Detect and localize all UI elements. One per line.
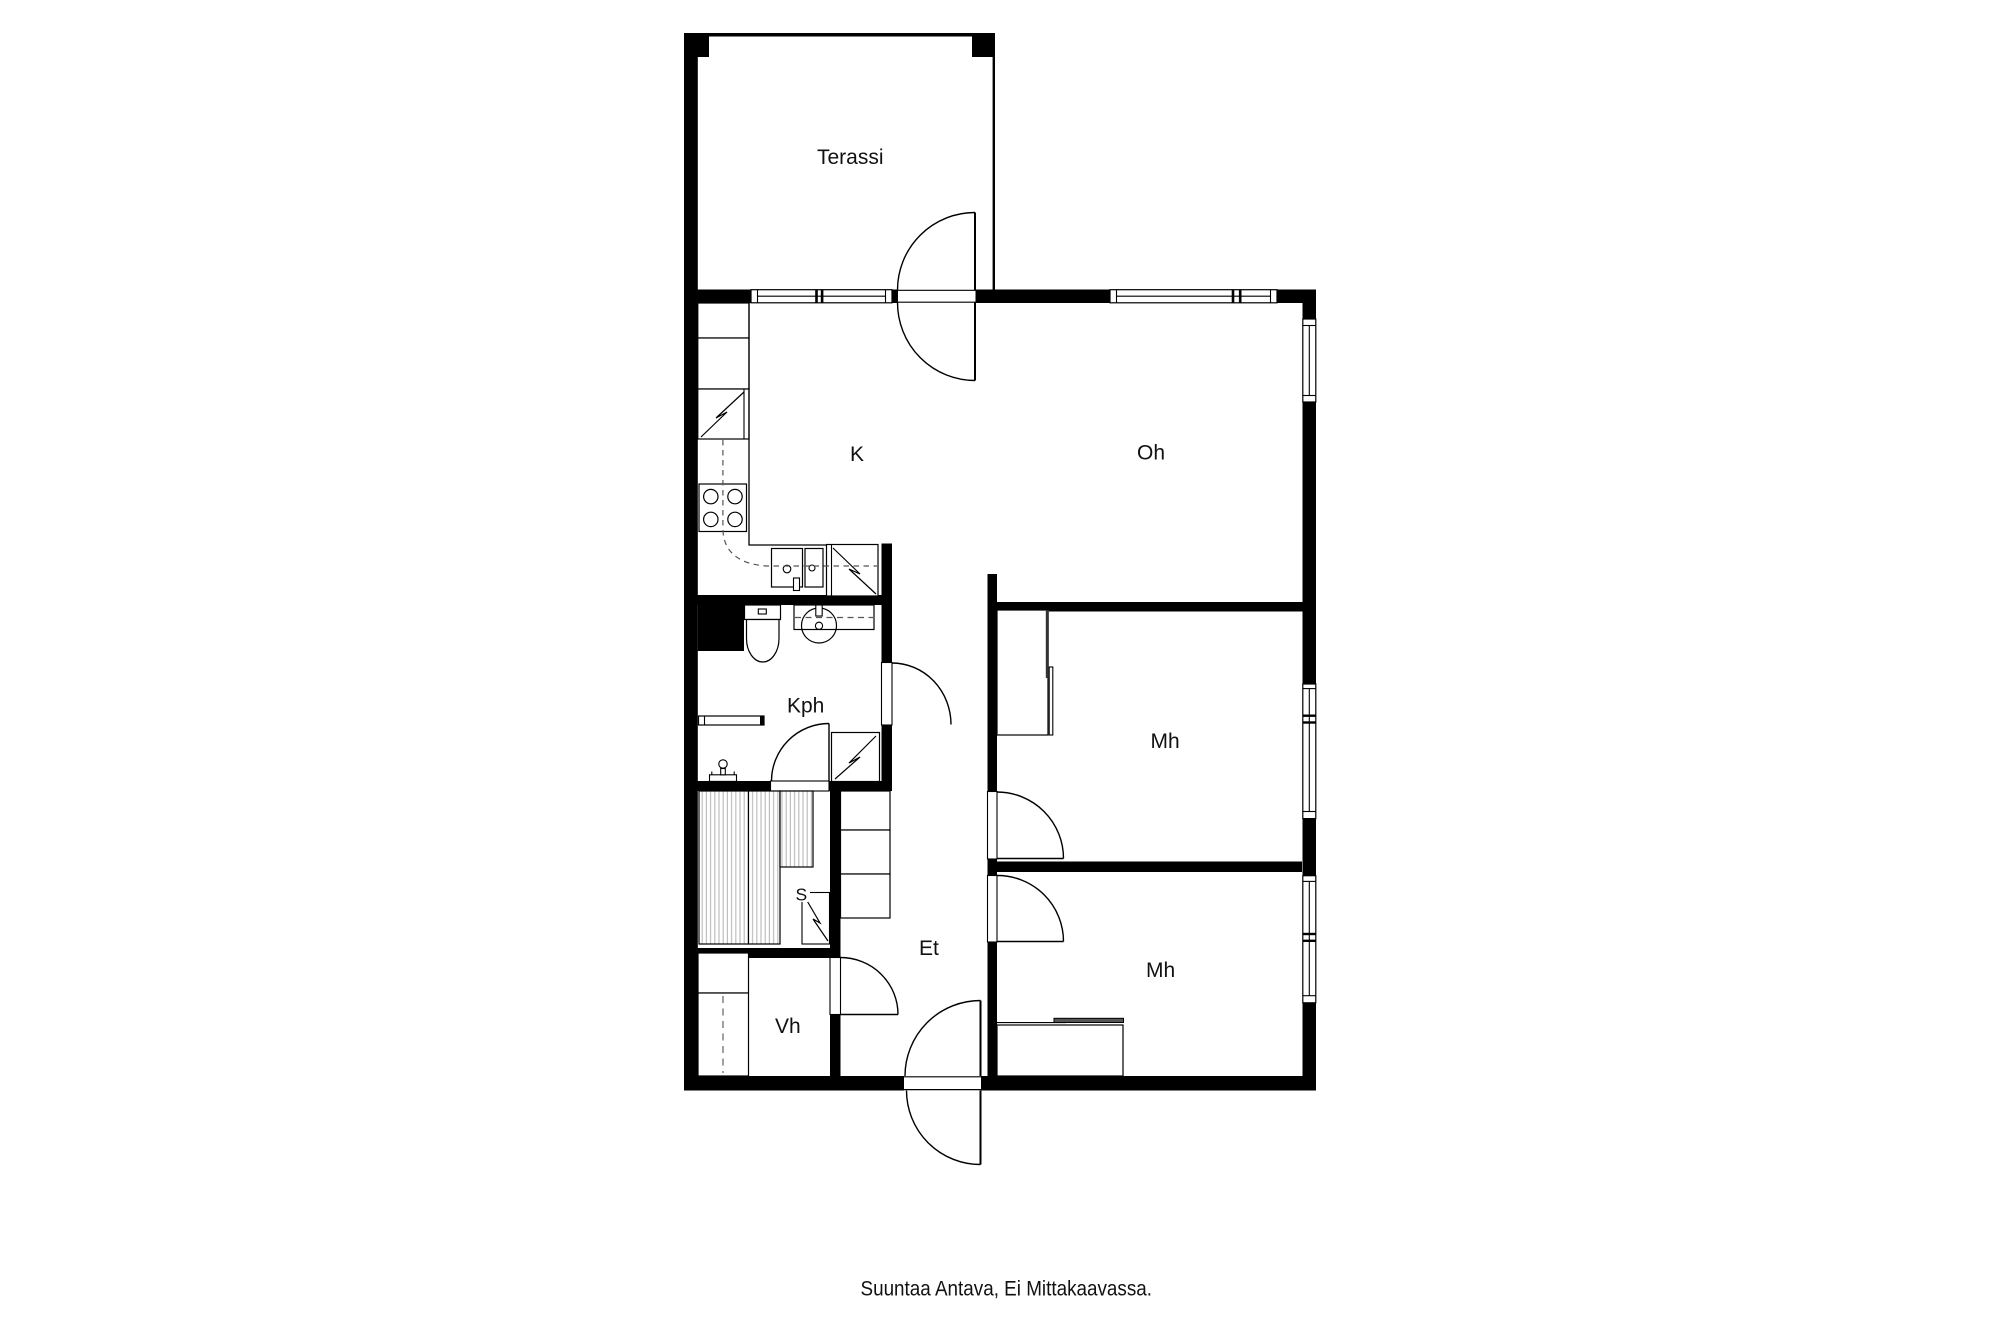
svg-text:Mh: Mh [1146, 959, 1175, 982]
svg-text:Mh: Mh [1151, 730, 1180, 753]
svg-text:Terassi: Terassi [817, 146, 884, 169]
svg-text:Et: Et [919, 937, 939, 960]
svg-text:Suuntaa Antava, Ei Mittakaavas: Suuntaa Antava, Ei Mittakaavassa. [861, 1278, 1153, 1301]
svg-text:S: S [796, 885, 808, 905]
svg-text:K: K [850, 443, 864, 466]
svg-text:Oh: Oh [1137, 442, 1165, 465]
svg-text:Vh: Vh [775, 1015, 801, 1038]
svg-text:Kph: Kph [787, 695, 824, 718]
